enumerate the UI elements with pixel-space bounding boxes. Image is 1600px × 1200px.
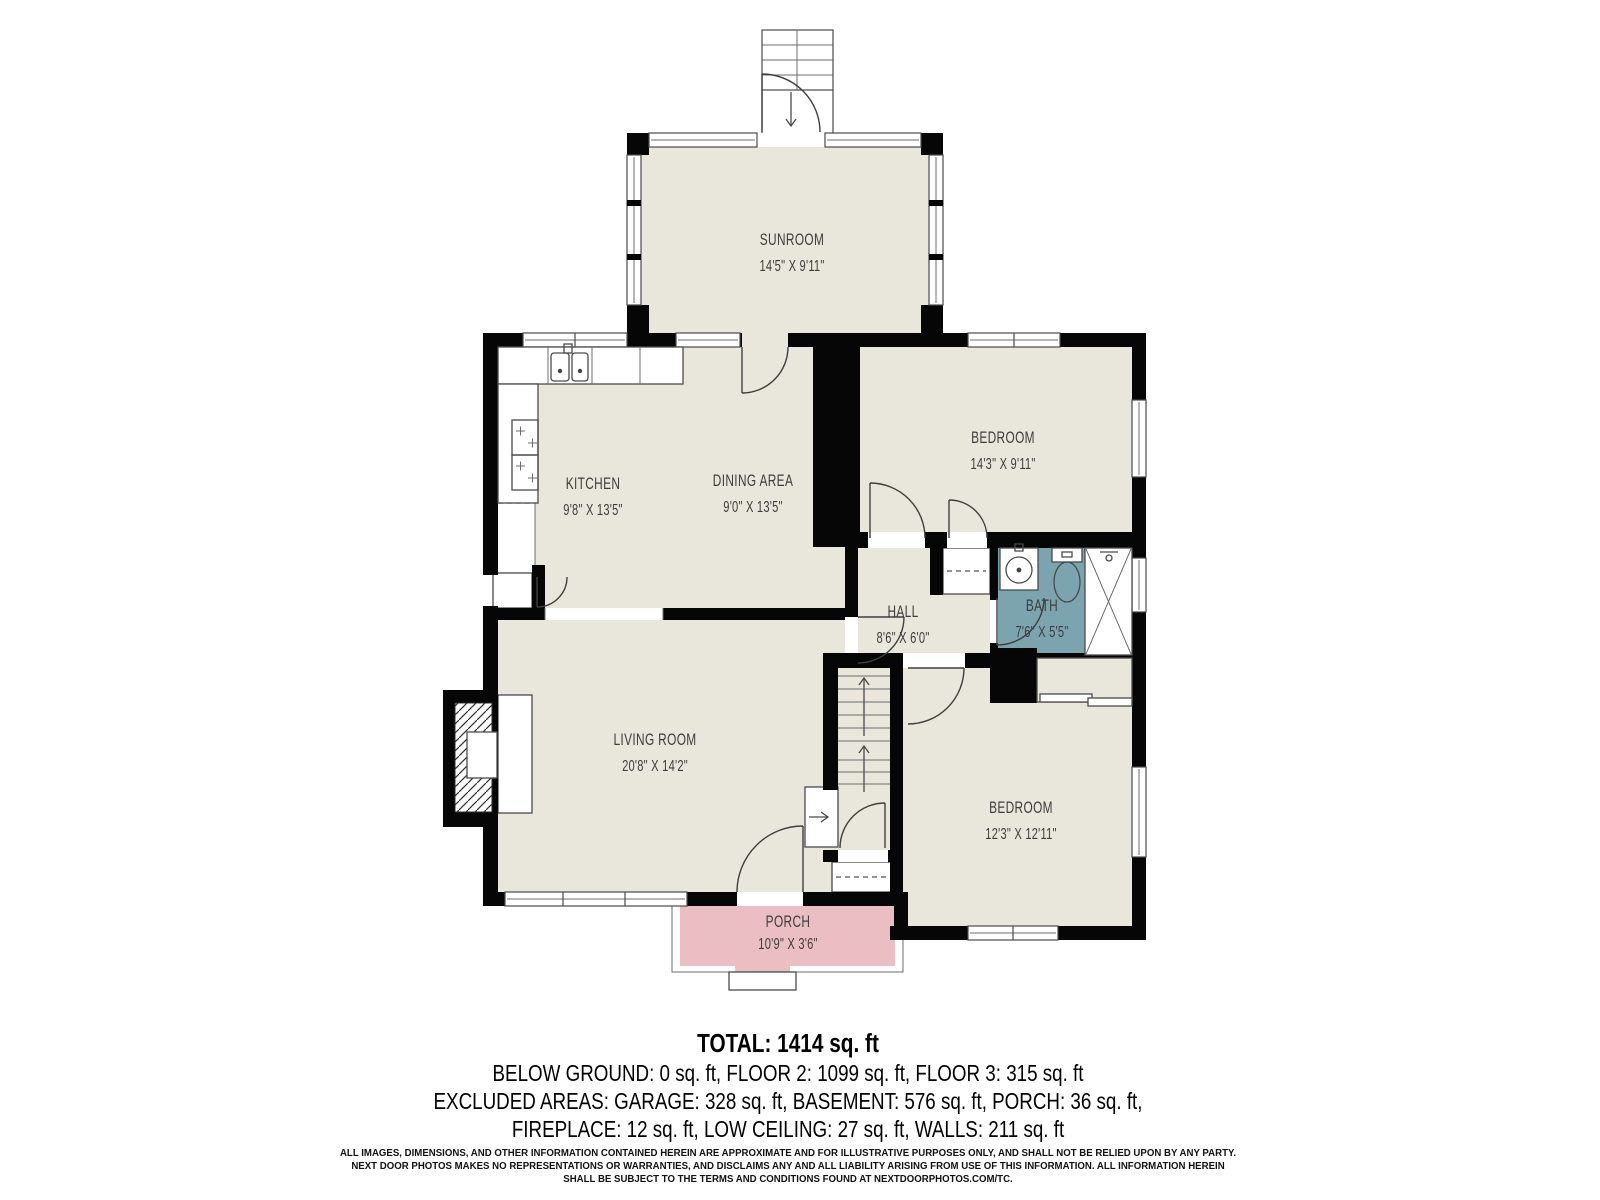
room-bedroom2-extension bbox=[903, 892, 1132, 926]
kitchen-counter bbox=[498, 347, 683, 384]
fireplace-hearth bbox=[498, 695, 532, 813]
wall-segment bbox=[990, 545, 998, 600]
wall-segment bbox=[888, 850, 903, 862]
door-opening bbox=[845, 617, 858, 653]
fireplace bbox=[443, 690, 498, 827]
room-name: PORCH bbox=[766, 913, 811, 931]
wall-segment bbox=[1132, 612, 1146, 767]
wall-segment bbox=[687, 892, 737, 906]
floor-plan-drawing: SUNROOM 14'5" X 9'11" KITCHEN 9'8" X 13'… bbox=[0, 0, 1600, 1200]
room-name: BATH bbox=[1026, 597, 1058, 615]
room-dims: 10'9" X 3'6" bbox=[758, 935, 817, 952]
sunroom-corner-post bbox=[627, 133, 649, 155]
wall-segment bbox=[930, 545, 943, 595]
excluded-area-text2: FIREPLACE: 12 sq. ft, LOW CEILING: 27 sq… bbox=[512, 1116, 1064, 1143]
bedroom2-closet bbox=[1037, 658, 1132, 706]
wall-segment bbox=[483, 608, 532, 620]
room-name: DINING AREA bbox=[713, 472, 793, 490]
chimney-wall-column bbox=[813, 333, 860, 547]
side-entry-alcove bbox=[493, 573, 532, 608]
room-name: BEDROOM bbox=[989, 799, 1053, 817]
room-dims: 14'3" X 9'11" bbox=[970, 455, 1035, 472]
area-summary: TOTAL: 1414 sq. ft BELOW GROUND: 0 sq. f… bbox=[434, 1029, 1143, 1143]
wall-segment bbox=[1132, 333, 1146, 400]
sunroom-corner-post bbox=[627, 305, 649, 335]
door-opening bbox=[838, 850, 888, 862]
room-name: HALL bbox=[887, 603, 918, 621]
cased-opening bbox=[545, 608, 663, 620]
total-area-text: TOTAL: 1414 sq. ft bbox=[697, 1029, 879, 1058]
wall-segment bbox=[1132, 857, 1146, 940]
wall-segment bbox=[823, 668, 838, 790]
wall-segment bbox=[483, 892, 505, 906]
floors-area-text: BELOW GROUND: 0 sq. ft, FLOOR 2: 1099 sq… bbox=[493, 1060, 1084, 1087]
wall-segment bbox=[663, 608, 845, 620]
room-name: BEDROOM bbox=[971, 429, 1035, 447]
room-dims: 9'0" X 13'5" bbox=[723, 498, 782, 515]
wall-segment bbox=[823, 653, 903, 668]
sliding-door bbox=[1088, 698, 1132, 706]
sunroom-corner-post bbox=[921, 133, 943, 155]
excluded-area-text: EXCLUDED AREAS: GARAGE: 328 sq. ft, BASE… bbox=[434, 1088, 1143, 1115]
porch-steps bbox=[729, 972, 796, 990]
wall-segment bbox=[990, 648, 1037, 703]
room-name: KITCHEN bbox=[566, 475, 621, 493]
disclaimer: ALL IMAGES, DIMENSIONS, AND OTHER INFORM… bbox=[340, 1148, 1236, 1185]
room-dims: 12'3" X 12'11" bbox=[985, 825, 1056, 842]
disclaimer-line: SHALL BE SUBJECT TO THE TERMS AND CONDIT… bbox=[563, 1174, 1013, 1185]
low-ceiling-area bbox=[498, 503, 535, 573]
door-opening bbox=[868, 532, 925, 548]
fireplace-firebox bbox=[467, 732, 497, 778]
wall-segment bbox=[1132, 477, 1146, 558]
wall-segment bbox=[823, 850, 838, 862]
entry-steps bbox=[762, 30, 833, 133]
floor-plan-page: SUNROOM 14'5" X 9'11" KITCHEN 9'8" X 13'… bbox=[0, 0, 1600, 1200]
sliding-door bbox=[1040, 694, 1092, 702]
wall-segment bbox=[627, 333, 676, 347]
room-dims: 14'5" X 9'11" bbox=[759, 257, 824, 274]
door-opening bbox=[903, 653, 965, 668]
room-dims: 9'8" X 13'5" bbox=[563, 501, 622, 518]
wall-segment bbox=[894, 892, 908, 940]
wall-segment bbox=[483, 333, 498, 575]
wall-segment bbox=[987, 532, 1132, 548]
disclaimer-line: NEXT DOOR PHOTOS MAKES NO REPRESENTATION… bbox=[351, 1161, 1224, 1172]
wall-segment bbox=[803, 892, 908, 906]
room-name: SUNROOM bbox=[760, 231, 824, 249]
room-dims: 20'8" X 14'2" bbox=[622, 757, 688, 774]
toilet-tank-icon bbox=[1052, 548, 1082, 562]
room-dims: 8'6" X 6'0" bbox=[876, 629, 929, 646]
room-dims: 7'6" X 5'5" bbox=[1015, 623, 1068, 640]
sunroom-corner-post bbox=[921, 305, 943, 335]
wall-segment bbox=[532, 565, 545, 620]
disclaimer-line: ALL IMAGES, DIMENSIONS, AND OTHER INFORM… bbox=[340, 1148, 1236, 1159]
room-name: LIVING ROOM bbox=[613, 731, 696, 749]
wall-segment bbox=[858, 532, 868, 548]
door-opening bbox=[947, 532, 987, 548]
wall-segment bbox=[845, 545, 858, 617]
